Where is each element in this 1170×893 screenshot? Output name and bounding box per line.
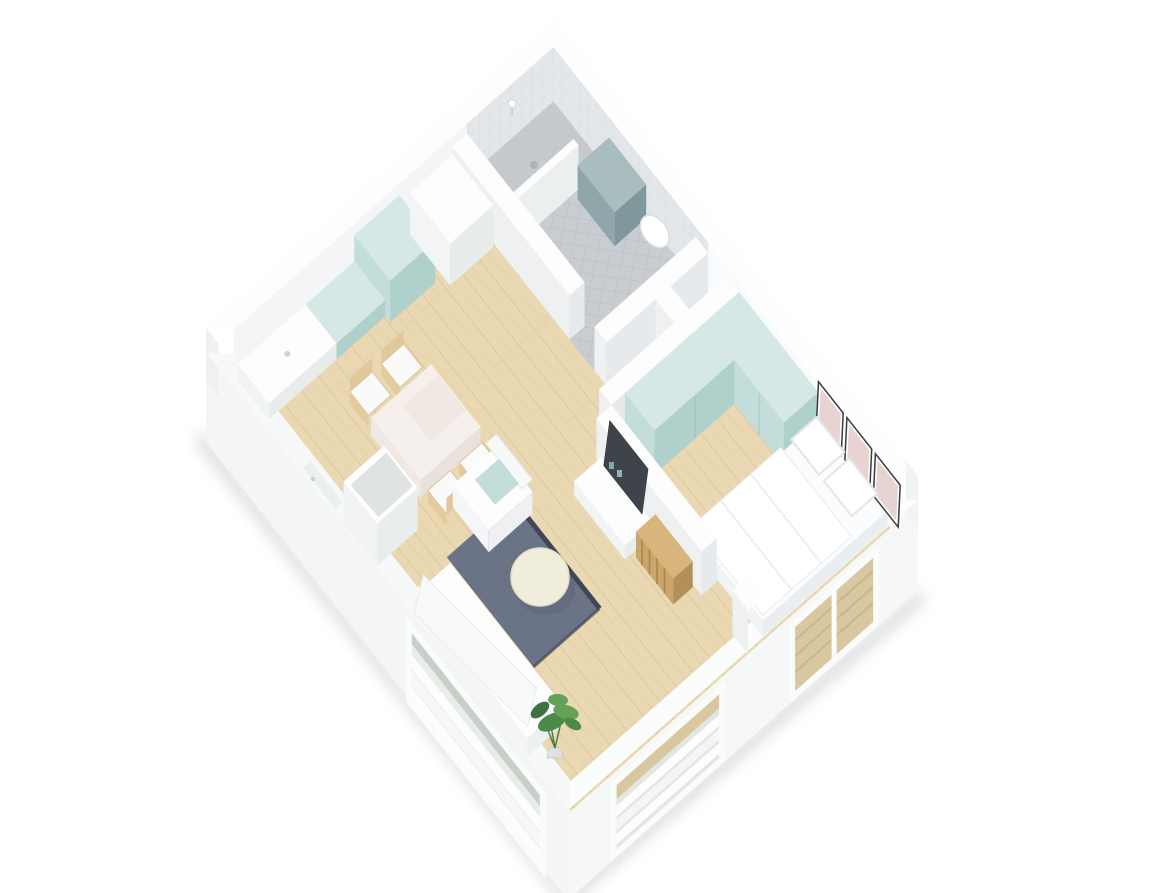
floor-plan-render [0,0,1170,893]
speaker [609,462,614,469]
isometric-apartment-svg [0,0,1170,893]
entrance-handle [311,477,315,481]
coffee-table [511,548,569,606]
speaker [617,470,622,477]
plant-pot [547,748,563,758]
kitchen-faucet [284,351,290,357]
